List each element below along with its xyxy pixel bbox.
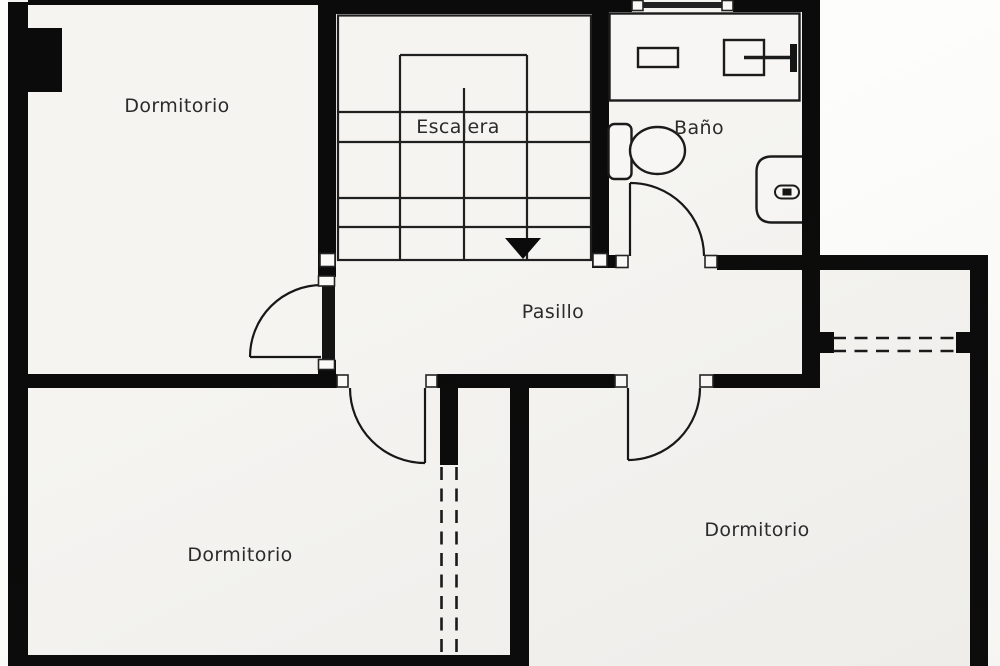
room-label-bedroom-bottom-left: Dormitorio	[187, 544, 292, 566]
wall-hallway-right	[802, 268, 820, 388]
toilet-tank	[609, 124, 632, 179]
floor-bottom-band	[8, 388, 970, 666]
wall-outer-top-left	[28, 0, 320, 5]
wall-window-stub-left	[820, 332, 834, 353]
jamb	[615, 375, 627, 387]
wall-bedroom-divider-upper	[440, 388, 458, 465]
wall-top-staircase	[336, 0, 592, 14]
sink-icon	[638, 48, 678, 67]
wall-outer-left	[8, 2, 28, 664]
wall-staircase-left	[318, 0, 336, 277]
room-label-bathroom: Baño	[674, 117, 724, 139]
bathtub-icon	[757, 157, 803, 223]
wall-middle-horizontal-b	[437, 374, 615, 388]
wall-bedroom-divider-main	[510, 388, 529, 666]
wall-end-cap	[320, 254, 335, 267]
wall-middle-horizontal-a	[8, 374, 337, 388]
wall-chimney-pier	[28, 28, 62, 92]
window-glass-bar	[643, 2, 723, 8]
jamb	[632, 1, 643, 11]
wall-bathroom-right	[802, 0, 820, 270]
bathtub-handle-grip	[783, 189, 792, 196]
wall-outer-bottom	[8, 655, 529, 666]
room-label-hallway: Pasillo	[522, 301, 584, 323]
wall-outer-right	[970, 255, 988, 666]
jamb	[616, 256, 628, 268]
wall-bathroom-left	[592, 0, 609, 268]
room-label-staircase: Escalera	[416, 116, 500, 138]
shower-wall-mount	[790, 44, 797, 72]
jamb	[337, 375, 348, 387]
jamb	[722, 1, 733, 11]
wall-end-cap	[593, 254, 607, 267]
jamb	[319, 360, 335, 370]
jamb	[426, 375, 437, 387]
wall-top-bathroom-a	[609, 0, 632, 12]
wall-window-stub-right	[956, 332, 972, 353]
floor-plan: Dormitorio Escalera Baño Pasillo Dormito…	[0, 0, 1000, 666]
window-bathroom-top	[632, 0, 733, 12]
jamb	[700, 375, 713, 387]
room-label-bedroom-bottom-right: Dormitorio	[704, 519, 809, 541]
floor-right-nook	[820, 255, 970, 390]
door-panel-top-left-bedroom	[322, 285, 335, 360]
jamb	[705, 256, 717, 268]
room-label-bedroom-top-left: Dormitorio	[124, 95, 229, 117]
jamb	[319, 276, 335, 286]
wall-bathroom-bottom-b	[717, 255, 987, 270]
wall-middle-horizontal-c	[713, 374, 820, 388]
